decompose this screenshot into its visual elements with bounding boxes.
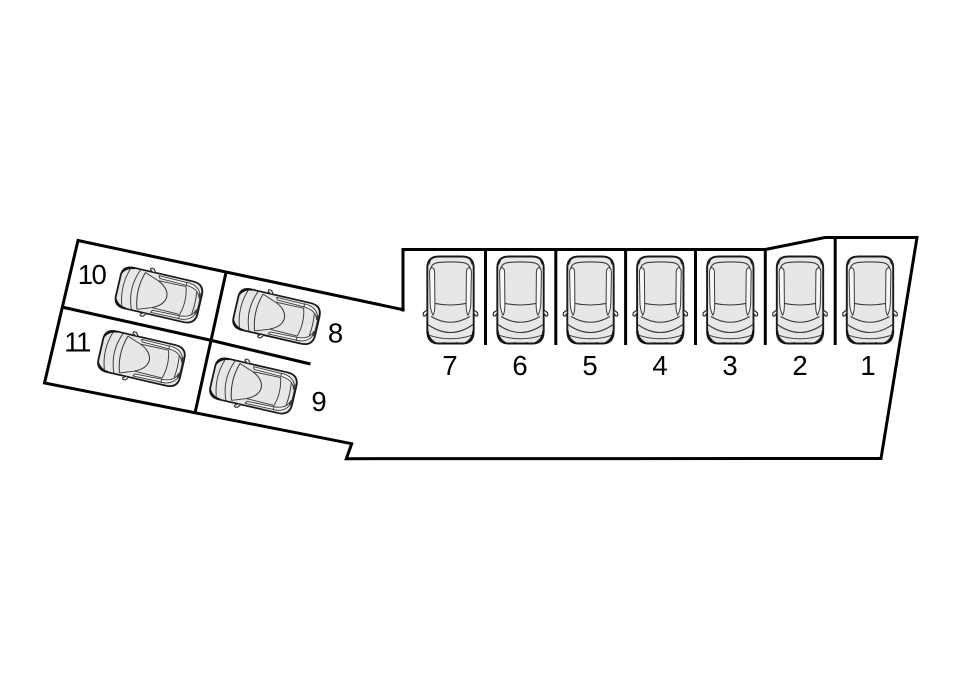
svg-text:1: 1 [860, 350, 875, 381]
svg-text:6: 6 [512, 350, 527, 381]
svg-text:11: 11 [64, 327, 90, 358]
svg-text:7: 7 [442, 350, 457, 381]
svg-text:10: 10 [78, 259, 107, 290]
svg-text:3: 3 [722, 350, 737, 381]
svg-text:5: 5 [582, 350, 597, 381]
svg-text:4: 4 [652, 350, 667, 381]
svg-text:8: 8 [328, 318, 343, 349]
svg-text:2: 2 [792, 350, 807, 381]
svg-text:9: 9 [311, 386, 326, 417]
